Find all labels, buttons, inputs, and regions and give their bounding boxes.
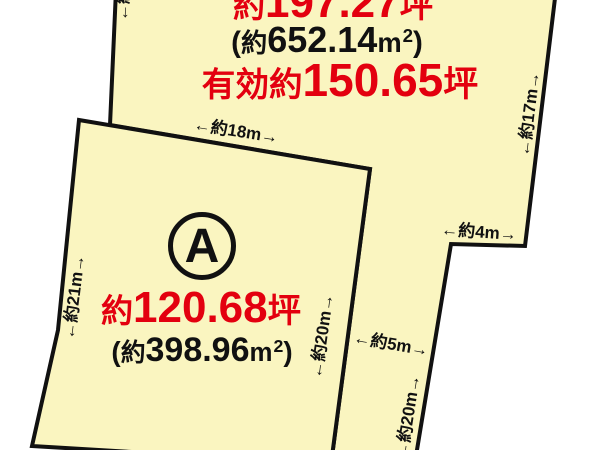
tsubo-prefix: 約	[233, 0, 265, 24]
parcel-a-badge: A	[168, 212, 236, 280]
parcel-a-area-tsubo: 約120.68坪	[101, 286, 301, 330]
sqm-exponent: 2	[273, 336, 283, 356]
sqm-prefix: 約	[241, 28, 267, 58]
parcel-a-letter: A	[185, 219, 220, 274]
effective-prefix: 有効約	[202, 67, 303, 104]
sqm-prefix: 約	[121, 340, 146, 367]
effective-unit: 坪	[443, 65, 478, 104]
dimension-label-top-left-partial: ←約	[114, 0, 132, 21]
paren-open: (	[231, 26, 241, 59]
sqm-unit: m	[250, 339, 273, 367]
tsubo-prefix: 約	[101, 293, 133, 329]
land-plot-diagram: 約197.27坪 (約652.14m2) 有効約150.65坪 A 約120.6…	[0, 0, 615, 450]
upper-area-sqm: (約652.14m2)	[231, 22, 423, 58]
parcel-a-area-sqm: (約398.96m2)	[111, 333, 292, 367]
effective-value: 150.65	[303, 54, 444, 106]
paren-close: )	[283, 336, 292, 367]
tsubo-value: 120.68	[133, 283, 268, 332]
paren-open: (	[111, 336, 120, 367]
sqm-value: 398.96	[146, 331, 250, 369]
tsubo-unit: 坪	[268, 293, 301, 330]
sqm-exponent: 2	[403, 25, 413, 46]
upper-effective-area: 有効約150.65坪	[202, 57, 478, 103]
